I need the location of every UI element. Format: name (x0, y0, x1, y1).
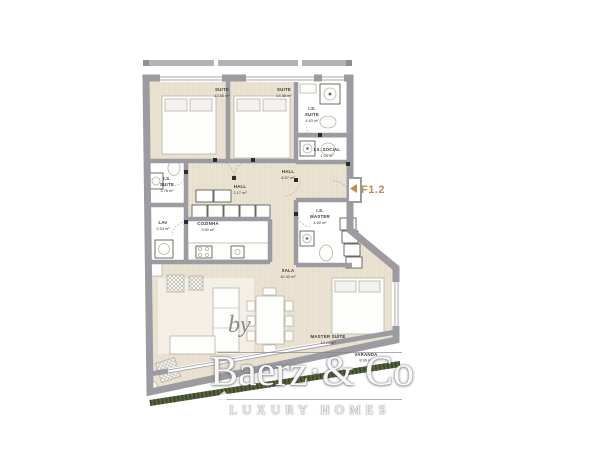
svg-text:40.32 m²: 40.32 m² (280, 274, 296, 279)
room-label-suite-2: SUITE 14.38 m² (276, 87, 292, 98)
svg-text:SUITE: SUITE (277, 87, 291, 92)
bed-icon (332, 278, 384, 334)
svg-text:LAV: LAV (158, 220, 167, 225)
svg-text:4.63 m²: 4.63 m² (305, 118, 319, 123)
pouf-icon (189, 276, 203, 290)
svg-text:2.54 m²: 2.54 m² (156, 226, 170, 231)
carousel-prev-icon[interactable] (203, 390, 237, 424)
svg-text:2.17 m²: 2.17 m² (233, 190, 247, 195)
svg-text:VARANDA: VARANDA (354, 352, 378, 357)
svg-text:HALL: HALL (282, 169, 295, 174)
svg-text:HALL: HALL (234, 184, 247, 189)
svg-text:8.90 m²: 8.90 m² (359, 358, 373, 363)
svg-text:14.38 m²: 14.38 m² (276, 93, 292, 98)
svg-text:I.S.: I.S. (316, 208, 323, 213)
svg-text:3.76 m²: 3.76 m² (160, 188, 174, 193)
svg-text:MASTER: MASTER (310, 214, 330, 219)
svg-text:4.60 m²: 4.60 m² (313, 220, 327, 225)
pouf-icon (167, 275, 184, 292)
room-label-sala: SALA 40.32 m² (280, 268, 296, 279)
svg-text:SALA: SALA (282, 268, 295, 273)
svg-text:MASTER SUITE: MASTER SUITE (310, 334, 345, 339)
svg-text:I.S.: I.S. (163, 176, 170, 181)
svg-text:SUITE: SUITE (160, 182, 174, 187)
kitchen-counter-icon (188, 243, 270, 260)
svg-text:9.50 m²: 9.50 m² (201, 227, 215, 232)
room-label-hall-small: HALL 2.17 m² (233, 184, 247, 195)
svg-text:COZINHA: COZINHA (197, 221, 219, 226)
svg-text:I.S.: I.S. (308, 106, 315, 111)
svg-text:13.65 m²: 13.65 m² (214, 93, 230, 98)
bed-icon (162, 96, 216, 154)
bed-icon (234, 96, 290, 158)
svg-text:8.57 m²: 8.57 m² (281, 175, 295, 180)
svg-text:I.S. SOCIAL: I.S. SOCIAL (314, 147, 341, 152)
svg-text:1.04 m²: 1.04 m² (320, 153, 334, 158)
floor-plan-svg: SUITE 13.65 m² SUITE 14.38 m² I.S. SUITE… (0, 0, 600, 450)
svg-text:SUITE: SUITE (305, 112, 319, 117)
room-label-hall-main: HALL 8.57 m² (281, 169, 295, 180)
svg-text:F1.2: F1.2 (361, 184, 385, 196)
listing-image: SUITE 13.65 m² SUITE 14.38 m² I.S. SUITE… (0, 0, 600, 450)
svg-text:SUITE: SUITE (215, 87, 229, 92)
balcony-ledge (143, 60, 352, 66)
svg-text:19.25 m²: 19.25 m² (320, 340, 336, 345)
room-label-suite-1: SUITE 13.65 m² (214, 87, 230, 98)
room-label-varanda: VARANDA 8.90 m² (354, 352, 378, 363)
